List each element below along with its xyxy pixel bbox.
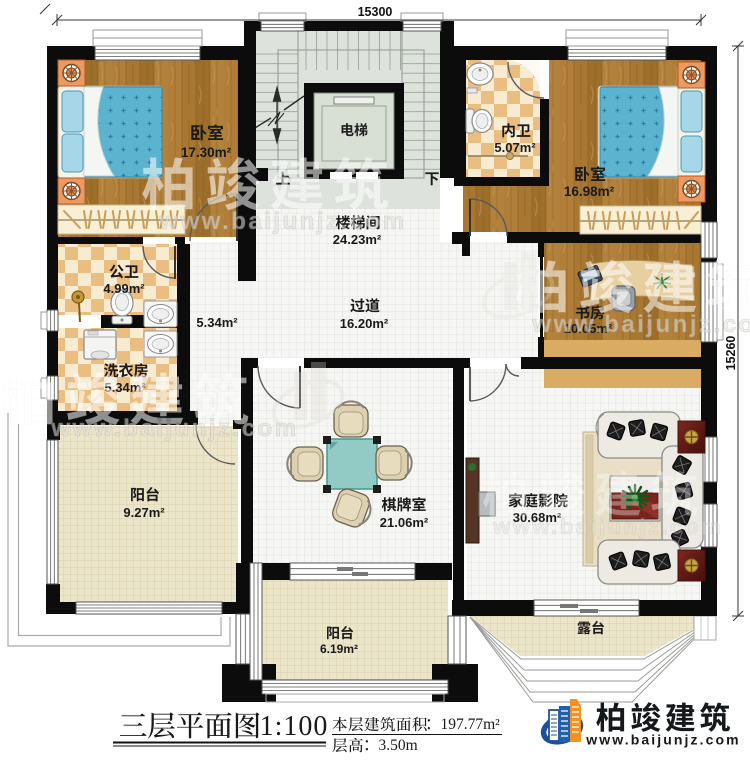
svg-text:6.19m²: 6.19m² (320, 642, 358, 656)
svg-text:www.baijunjz.com: www.baijunjz.com (158, 208, 406, 235)
svg-text:：3.50m: ：3.50m (363, 737, 418, 754)
svg-text:4.99m²: 4.99m² (103, 281, 145, 296)
svg-text:15300: 15300 (358, 5, 393, 19)
svg-text:15260: 15260 (724, 336, 738, 371)
svg-text:1:100: 1:100 (260, 711, 329, 742)
svg-text:16.98m²: 16.98m² (564, 184, 615, 199)
svg-text:17.30m²: 17.30m² (181, 145, 232, 160)
svg-text:www.baijunjz.com: www.baijunjz.com (531, 311, 750, 338)
svg-text:16.20m²: 16.20m² (340, 316, 389, 331)
svg-text:www.baijunjz.com: www.baijunjz.com (50, 415, 298, 442)
svg-text:www.baijunjz.com: www.baijunjz.com (492, 514, 723, 539)
svg-text:www.baijunjz.com: www.baijunjz.com (585, 732, 740, 748)
svg-text:5.34m²: 5.34m² (196, 315, 238, 330)
svg-text:5.07m²: 5.07m² (494, 140, 536, 155)
svg-text:9.27m²: 9.27m² (123, 505, 165, 520)
svg-text:21.06m²: 21.06m² (380, 515, 429, 530)
svg-text:：197.77m²: ：197.77m² (425, 716, 500, 733)
